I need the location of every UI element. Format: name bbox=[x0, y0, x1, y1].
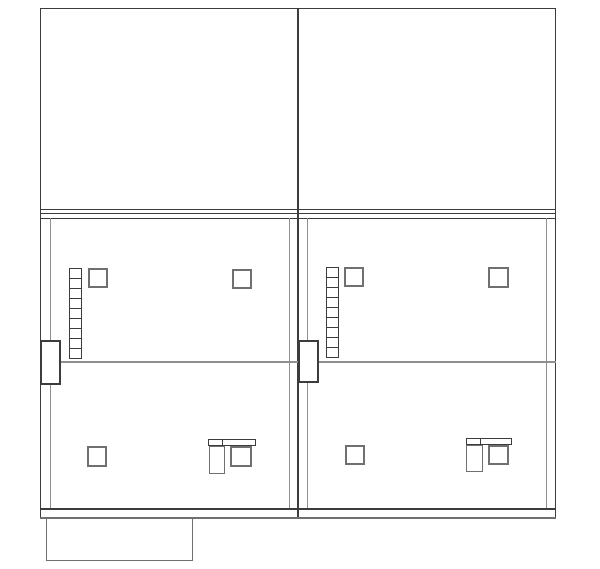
right-unit-lower-column bbox=[345, 445, 365, 465]
right-unit-upper-column-a bbox=[344, 267, 364, 287]
left-unit-counter-top bbox=[208, 439, 256, 446]
left-unit-ladder bbox=[69, 268, 82, 359]
left-unit-lower-column bbox=[87, 446, 107, 467]
upper-left-roof-outline bbox=[40, 8, 298, 210]
right-unit-counter-divider bbox=[480, 438, 481, 445]
right-unit-fixture-square bbox=[488, 445, 509, 465]
left-unit-upper-column-b bbox=[232, 269, 252, 289]
floor-plan-drawing bbox=[0, 0, 600, 569]
upper-right-roof-outline bbox=[298, 8, 556, 210]
right-unit-counter-top bbox=[466, 438, 512, 445]
left-unit-counter-divider bbox=[222, 439, 223, 446]
right-unit-floor-divider bbox=[319, 361, 556, 363]
left-unit-floor-divider bbox=[61, 361, 298, 363]
left-unit-fixture-square bbox=[230, 446, 252, 467]
left-unit-upper-column-a bbox=[88, 268, 108, 288]
right-unit-inner-wall-right bbox=[546, 218, 547, 508]
right-outer-wall bbox=[555, 210, 556, 518]
ground-floor-base-line bbox=[40, 508, 556, 510]
right-unit-ladder bbox=[326, 267, 339, 358]
right-unit-fixture-tall bbox=[466, 445, 483, 472]
porch-slab-outline bbox=[46, 518, 193, 561]
party-wall-projection bbox=[298, 340, 319, 383]
left-wall-projection bbox=[40, 340, 61, 385]
right-unit-upper-column-b bbox=[488, 267, 509, 288]
left-unit-inner-wall-right bbox=[289, 218, 290, 508]
left-unit-fixture-tall bbox=[209, 446, 225, 474]
